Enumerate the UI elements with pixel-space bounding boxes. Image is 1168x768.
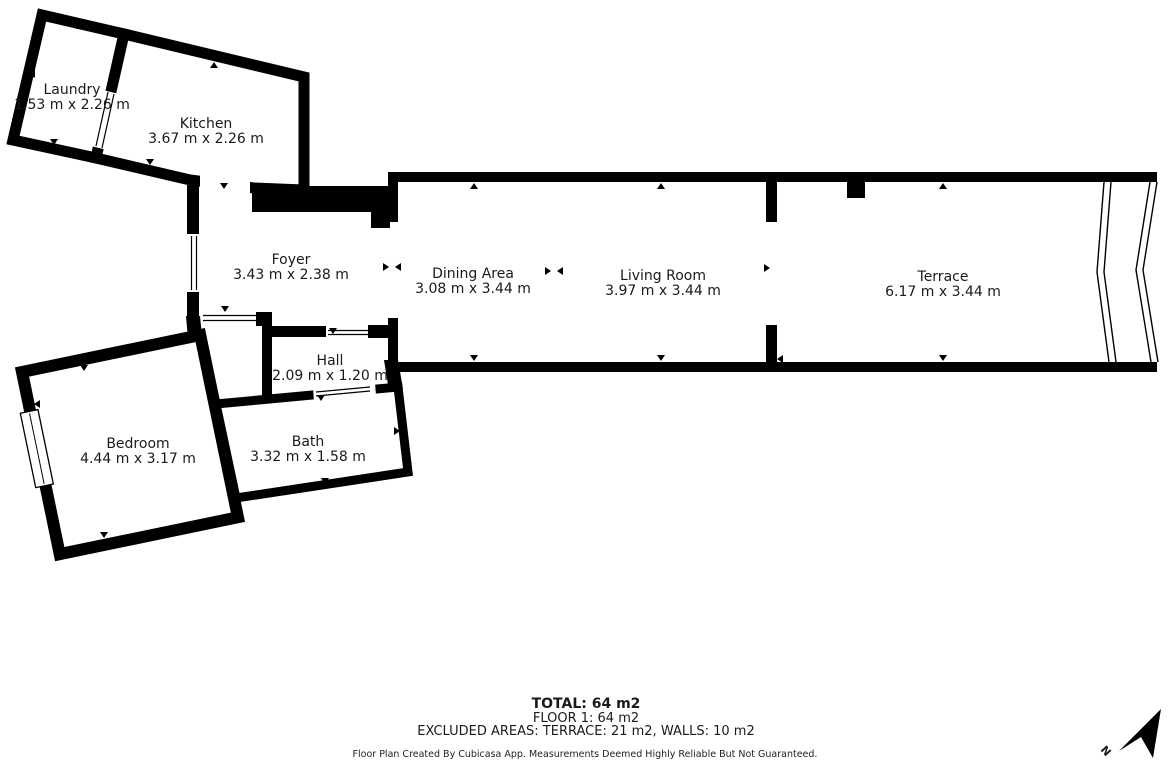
room-terrace-label: Terrace [917,269,969,285]
foyer-left-wall-top [187,176,199,234]
foyer-left-wall-bottom [187,292,199,318]
room-bedroom-dims: 4.44 m x 3.17 m [80,451,196,467]
room-hall-dims: 2.09 m x 1.20 m [272,368,388,384]
room-living-dims: 3.97 m x 3.44 m [605,283,721,299]
room-bath-label: Bath [292,434,325,450]
floorplan-page: Laundry 1.53 m x 2.26 m Kitchen 3.67 m x… [0,0,1168,768]
hall-left-wall [262,315,272,400]
room-dining-label: Dining Area [432,266,514,282]
room-foyer-dims: 3.43 m x 2.38 m [233,267,349,283]
room-foyer-label: Foyer [272,252,311,268]
summary-total: TOTAL: 64 m2 [532,696,641,712]
room-terrace-dims: 6.17 m x 3.44 m [885,284,1001,300]
hall-top-wall-corner [368,325,390,338]
room-hall-label: Hall [317,353,344,369]
room-kitchen-label: Kitchen [180,116,233,132]
floorplan-svg: Laundry 1.53 m x 2.26 m Kitchen 3.67 m x… [0,0,1168,768]
terrace-wall-stub [847,182,865,198]
foyer-dining-opening [385,222,400,318]
room-bedroom-label: Bedroom [106,436,169,452]
room-kitchen-dims: 3.67 m x 2.26 m [148,131,264,147]
summary-excluded: EXCLUDED AREAS: TERRACE: 21 m2, WALLS: 1… [417,724,754,739]
room-dining-dims: 3.08 m x 3.44 m [415,281,531,297]
room-laundry-label: Laundry [43,82,100,98]
disclaimer-text: Floor Plan Created By Cubicasa App. Meas… [353,749,818,760]
room-living-label: Living Room [620,268,706,284]
room-laundry-dims: 1.53 m x 2.26 m [14,97,130,113]
room-bath-dims: 3.32 m x 1.58 m [250,449,366,465]
hall-top-wall [272,326,326,337]
living-terrace-opening [765,222,778,325]
